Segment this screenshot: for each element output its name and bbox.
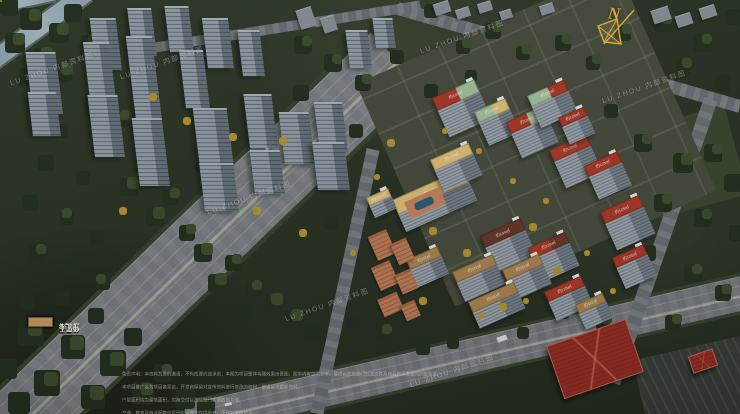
disclaimer-line: 交通、教育及商业配套信息因时间变化仅供参考，不作为交付承诺。 <box>122 410 422 414</box>
compass: N <box>590 2 646 64</box>
residential-tower <box>372 18 396 48</box>
residential-tower <box>345 30 372 68</box>
roof-area-label: 约125㎡ <box>519 115 534 125</box>
roof-area-label: 约125㎡ <box>541 241 556 251</box>
disclaimer-line: 本项目推广名为项目备案名，开发商保留对宣传资料进行修改的权利，敬请留意最新资料。 <box>122 384 467 391</box>
residential-tower <box>28 92 61 136</box>
roof-area-label: 约111㎡ <box>515 263 530 272</box>
roof-area-label: 约111㎡ <box>417 253 432 262</box>
roof-area-label: 约134㎡ <box>495 228 510 238</box>
autumn-trees <box>0 0 2 2</box>
roof-area-label: 约111㎡ <box>486 293 501 302</box>
legend-swatch <box>28 317 53 327</box>
roof-area-label: 约137㎡ <box>444 152 459 162</box>
disclaimer-line: 免责声明：本资料为要约邀请，不构成要约或承诺；本图为项目整体鸟瞰效果示意图，图中… <box>122 371 622 378</box>
disclaimer-line: 户型面积均为建筑面积，实际交付以测绘部门实测数据为准。 <box>122 397 402 404</box>
roof-area-label: 约125㎡ <box>622 251 637 261</box>
roof-area-label: 约125㎡ <box>448 90 463 100</box>
compass-needle-icon <box>590 2 646 64</box>
roof-area-label: 约125㎡ <box>595 159 610 169</box>
roof-area-label: 约125㎡ <box>557 284 572 294</box>
residential-tower <box>279 112 315 164</box>
residential-tower <box>193 108 234 168</box>
roof-area-label: 约116㎡ <box>540 89 555 99</box>
legend-row: 约111㎡ <box>28 316 59 327</box>
roof-area-label: 约125㎡ <box>614 205 629 215</box>
roof-area-label: 约116㎡ <box>485 106 500 116</box>
aerial-render-image: 约125㎡ 约116㎡ 约125㎡ 约116㎡ 约125㎡ 约125㎡ 约125… <box>0 0 740 414</box>
residential-tower <box>312 142 350 190</box>
roof-area-label: 约111㎡ <box>467 264 482 273</box>
swimming-pool <box>413 196 435 211</box>
disclaimer-text: 免责声明：本资料为要约邀请，不构成要约或承诺；本图为项目整体鸟瞰效果示意图，图中… <box>122 371 642 414</box>
